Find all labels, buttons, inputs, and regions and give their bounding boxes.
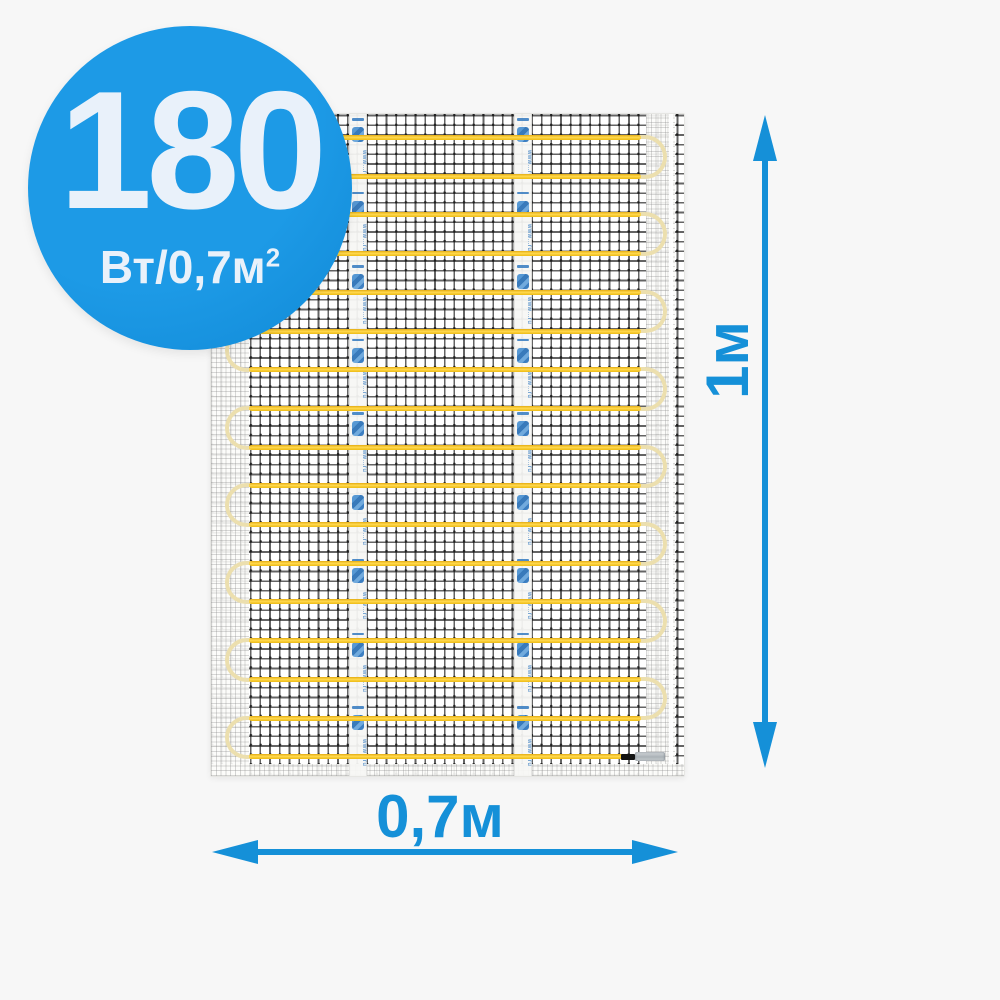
tape-brand-logo-icon [517, 274, 529, 289]
heating-cable-run [249, 445, 641, 450]
tape-dash [517, 265, 529, 268]
mat-bottom-margin [211, 764, 684, 776]
height-arrow-shaft [762, 156, 768, 724]
tape-website-text: www…ru [349, 734, 367, 770]
heating-cable-run [249, 406, 641, 411]
power-unit-base: Вт/0,7м [100, 241, 266, 293]
tape-dash [352, 706, 364, 709]
tape-dash [517, 633, 529, 636]
tape-brand-logo-icon [352, 642, 364, 657]
tape-dash [517, 339, 529, 342]
tape-brand-logo-icon [517, 348, 529, 363]
heating-cable-run [249, 367, 641, 372]
tape-print-segment: www…ru [514, 261, 532, 335]
tape-brand-logo-icon [352, 348, 364, 363]
power-value: 180 [28, 66, 352, 234]
tape-print-segment: www…ru [514, 482, 532, 556]
tape-brand-logo-icon [352, 568, 364, 583]
width-arrow-right-icon [632, 840, 678, 864]
tape-website-text: www…ru [514, 293, 532, 329]
tape-website-text: www…ru [349, 587, 367, 623]
heating-cable-run [249, 522, 641, 527]
tape-print-segment: www…ru [514, 702, 532, 776]
tape-brand-logo-icon [517, 642, 529, 657]
height-label: 1м [689, 285, 765, 435]
tape-brand-logo-icon [352, 274, 364, 289]
heating-cable-run [249, 716, 641, 721]
heating-cable-run [249, 638, 641, 643]
tape-website-text: www…ru [514, 367, 532, 403]
tape-dash [517, 706, 529, 709]
heating-cable-run [249, 561, 641, 566]
width-label: 0,7м [290, 782, 590, 851]
cable-end-sleeve [621, 754, 635, 760]
tape-website-text: www…ru [514, 514, 532, 550]
heating-cable-run [249, 483, 641, 488]
heating-cable-run [249, 754, 623, 759]
power-badge: 180 Вт/0,7м2 [28, 26, 352, 350]
heating-cable-run [249, 677, 641, 682]
tape-website-text: www…ru [349, 514, 367, 550]
tape-website-text: www…ru [349, 367, 367, 403]
tape-website-text: www…ru [349, 293, 367, 329]
width-arrow-left-icon [212, 840, 258, 864]
tape-print-segment: www…ru [349, 555, 367, 629]
heating-cable-run [249, 329, 641, 334]
height-arrow-down-icon [753, 722, 777, 768]
tape-print-segment: www…ru [349, 702, 367, 776]
tape-dash [352, 118, 364, 121]
height-arrow-up-icon [753, 115, 777, 161]
power-unit: Вт/0,7м2 [28, 244, 352, 290]
product-card: www…ruwww…ruwww…ruwww…ruwww…ruwww…ruwww…… [0, 0, 1000, 1000]
tape-dash [517, 192, 529, 195]
tape-dash [517, 118, 529, 121]
tape-print-segment: www…ru [514, 555, 532, 629]
power-unit-sup: 2 [266, 243, 280, 273]
tape-website-text: www…ru [514, 734, 532, 770]
tape-dash [352, 633, 364, 636]
tape-dash [352, 265, 364, 268]
tape-brand-logo-icon [352, 495, 364, 510]
tape-dash [517, 412, 529, 415]
tape-website-text: www…ru [514, 587, 532, 623]
tape-brand-logo-icon [352, 421, 364, 436]
tape-brand-logo-icon [517, 568, 529, 583]
tape-print-segment: www…ru [349, 482, 367, 556]
tape-dash [352, 192, 364, 195]
heating-cable-run [249, 599, 641, 604]
tape-brand-logo-icon [517, 421, 529, 436]
cable-end-splice [635, 752, 665, 761]
tape-print-segment: www…ru [514, 188, 532, 262]
tape-brand-logo-icon [517, 495, 529, 510]
tape-dash [352, 339, 364, 342]
tape-dash [352, 412, 364, 415]
